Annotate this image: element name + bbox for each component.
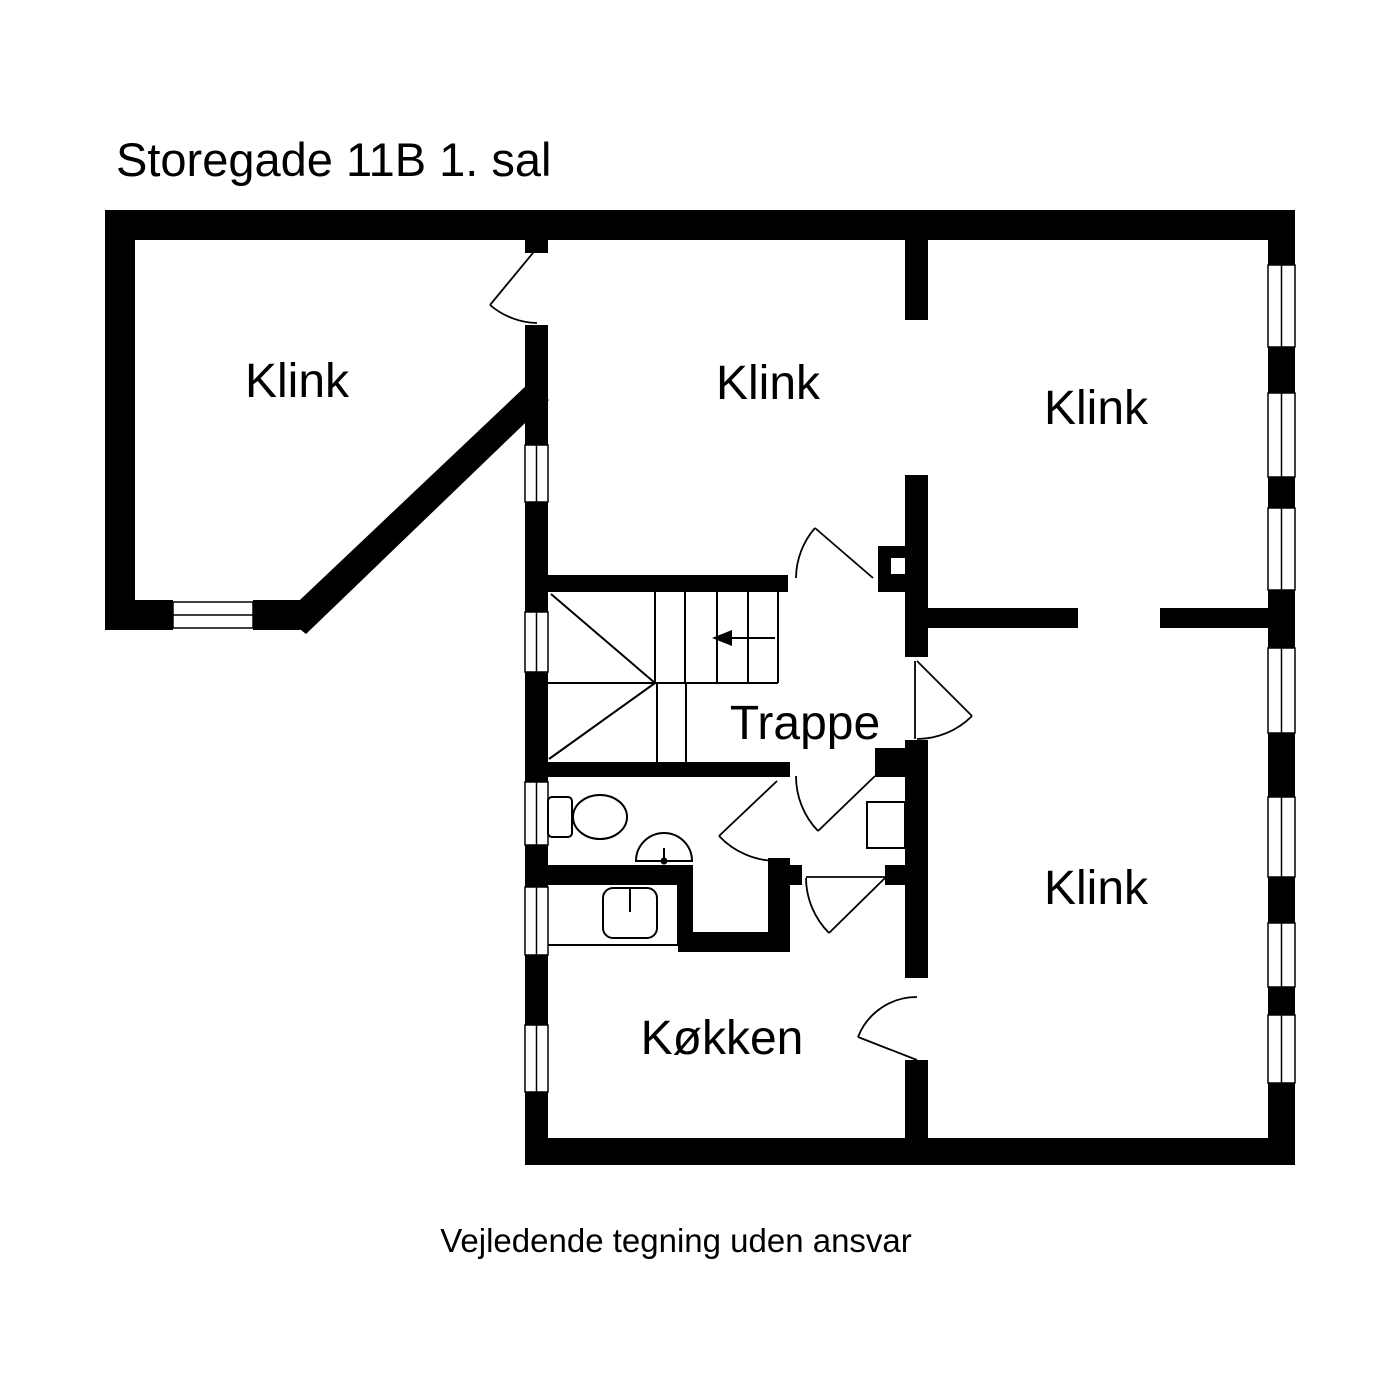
washbasin-icon (636, 833, 692, 865)
hall-wall-a (768, 865, 802, 885)
wall-segment (905, 240, 928, 320)
door-top-left-room (490, 248, 537, 323)
window (525, 445, 548, 502)
window (1268, 797, 1295, 877)
wall-segment (525, 502, 548, 612)
window (1268, 923, 1295, 987)
room-label-klink-middle: Klink (716, 357, 821, 410)
door-kitchen-to-right-room (858, 997, 917, 1060)
window (525, 887, 548, 955)
wall-notch-gap (891, 558, 905, 574)
wall-segment (905, 475, 928, 657)
window (1268, 393, 1295, 477)
door-trappe-to-middle-room (796, 528, 873, 578)
trappe-top-wall (548, 575, 788, 592)
wall-segment (1268, 590, 1295, 648)
wall-segment (1268, 477, 1295, 508)
wall-segment (1268, 1083, 1295, 1140)
window (525, 1025, 548, 1092)
window (1268, 508, 1295, 590)
window (1268, 265, 1295, 347)
hall-cabinet-icon (867, 802, 905, 848)
window (525, 782, 548, 845)
bath-bottom-wall (525, 865, 693, 885)
floor-plan-page: Storegade 11B 1. sal (0, 0, 1400, 1400)
window (525, 612, 548, 672)
wall-segment (525, 672, 548, 782)
wall-segment (525, 325, 548, 445)
wall-bottom (525, 1138, 1295, 1165)
door-hall-to-bathroom (719, 781, 777, 861)
door-trappe-to-right-room (915, 661, 972, 739)
wall-top (105, 210, 1295, 240)
window (1268, 1015, 1295, 1083)
wall-bottom-left-a (105, 600, 173, 630)
wall-segment (525, 955, 548, 1025)
disclaimer-text: Vejledende tegning uden ansvar (0, 1222, 1400, 1260)
wall-diagonal (283, 383, 549, 634)
trappe-bottom-wall (548, 762, 790, 777)
kitchen-sink-icon (603, 888, 657, 938)
trappe-bottom-wall-right (875, 748, 905, 777)
door-trappe-to-hall (796, 776, 875, 831)
door-hall-to-kitchen (806, 877, 885, 933)
room-label-klink-bottom-right: Klink (1044, 862, 1149, 915)
niche-bottom-wall (678, 932, 790, 952)
wall-segment (1268, 733, 1295, 797)
niche-left-wall (678, 885, 693, 932)
wall-segment (905, 1060, 928, 1140)
window (173, 602, 253, 628)
room-label-klink-top-left: Klink (245, 355, 350, 408)
wall-segment (905, 740, 928, 978)
toilet-icon (548, 795, 627, 839)
room-label-klink-top-right: Klink (1044, 382, 1149, 435)
right-room-divider-b (1160, 608, 1268, 628)
wall-segment (1268, 347, 1295, 393)
wall-segment (525, 1092, 548, 1140)
wall-column-right (1268, 210, 1295, 1140)
window (1268, 648, 1295, 733)
floor-plan-drawing: Klink Klink Klink Trappe Klink Køkken (0, 0, 1400, 1400)
room-label-trappe: Trappe (730, 697, 880, 750)
room-label-koekken: Køkken (641, 1012, 804, 1065)
stair-direction-arrow-icon (712, 630, 775, 646)
wall-segment (1268, 877, 1295, 923)
hall-wall-b (885, 865, 905, 885)
wall-left (105, 210, 135, 630)
wall-column-center-left (525, 233, 548, 1140)
wall-segment (1268, 210, 1295, 265)
right-room-divider-a (928, 608, 1078, 628)
wall-segment (1268, 987, 1295, 1015)
